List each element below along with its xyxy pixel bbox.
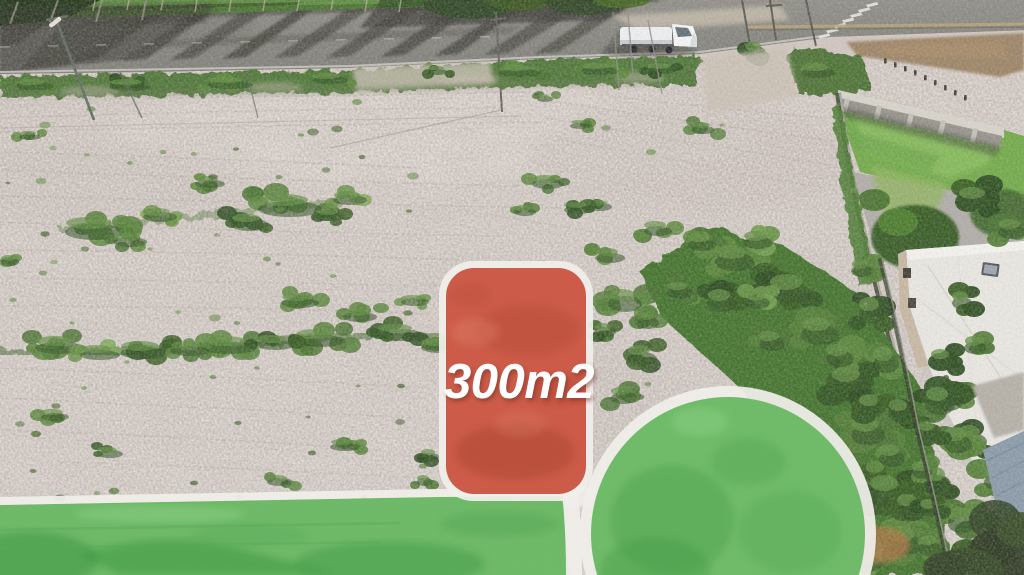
svg-text:300m2: 300m2 xyxy=(444,355,594,409)
